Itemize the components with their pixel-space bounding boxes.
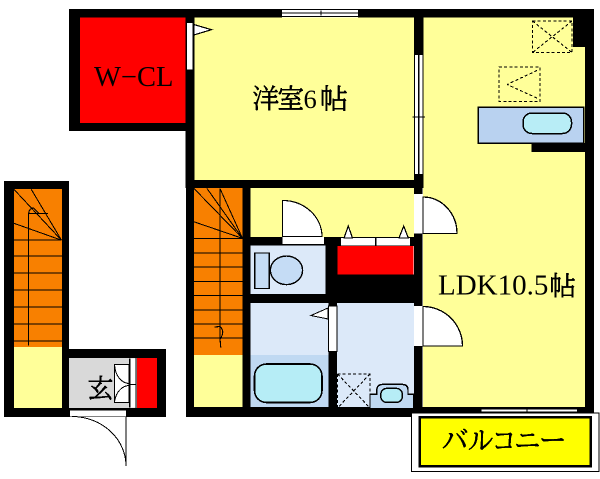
svg-text:LDK10.5: LDK10.5 [438,270,548,302]
svg-text:W−CL: W−CL [94,62,173,93]
svg-text:6: 6 [304,84,317,114]
